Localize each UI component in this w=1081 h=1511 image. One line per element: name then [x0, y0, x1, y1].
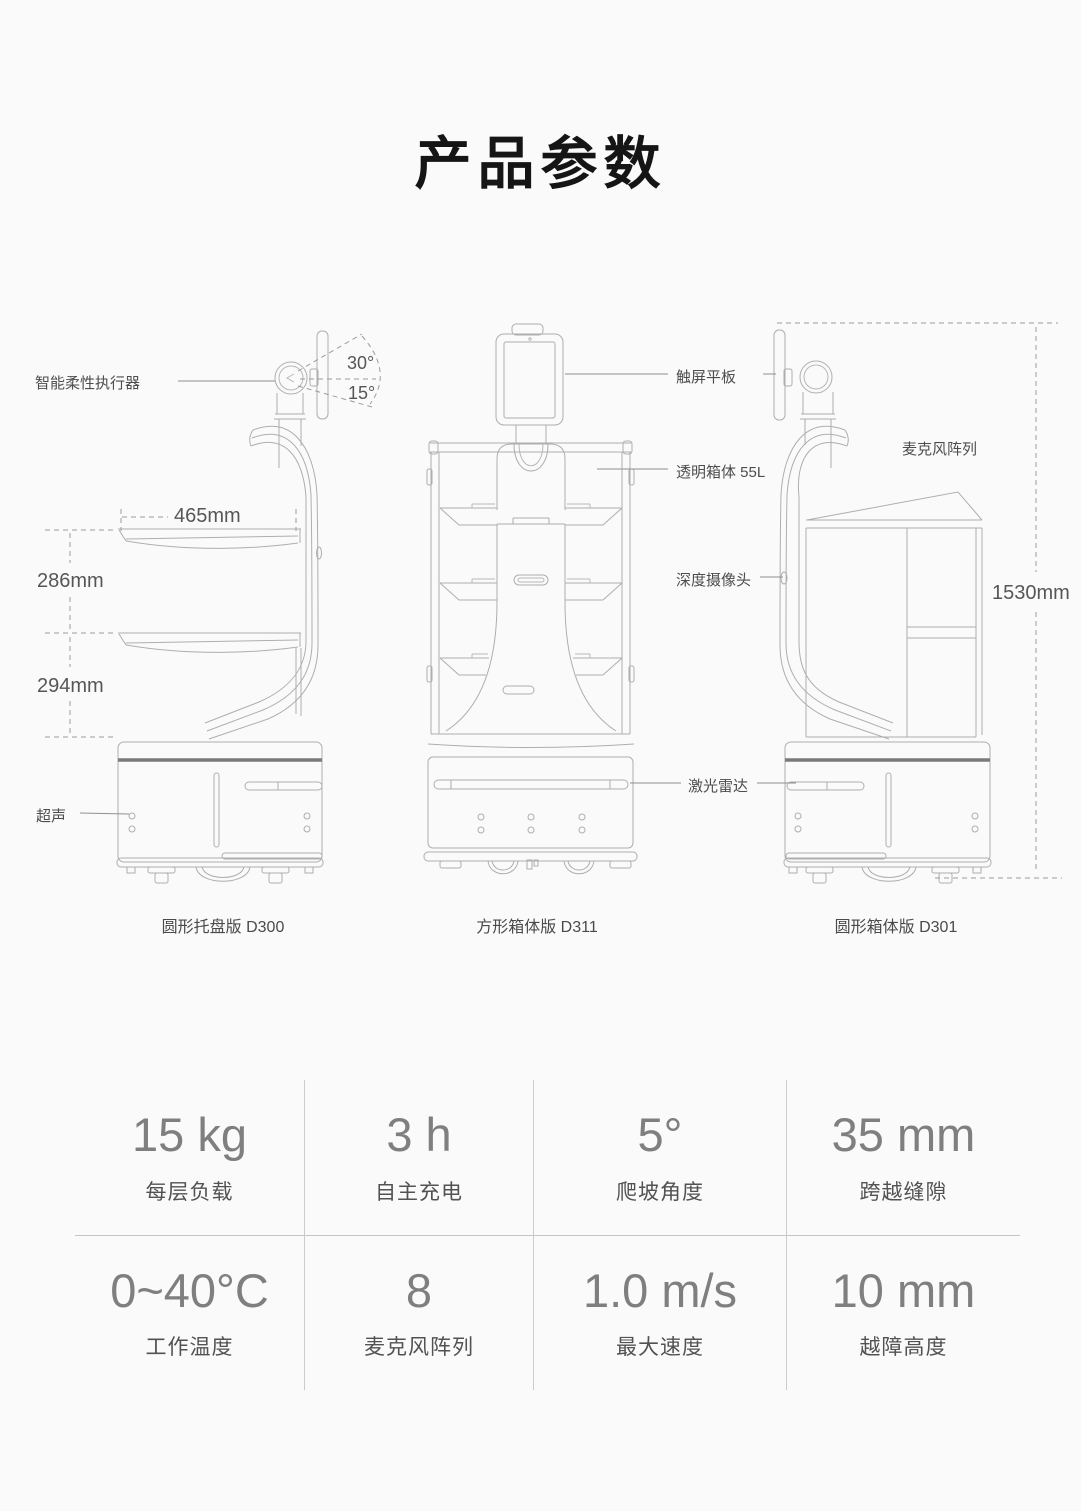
spec-climb-angle: 5° 爬坡角度 [533, 1080, 786, 1235]
spec-climb-angle-label: 爬坡角度 [616, 1176, 704, 1206]
spec-obstacle-height-value: 10 mm [832, 1265, 976, 1317]
robot-d311-drawing [424, 324, 637, 874]
spec-max-speed-value: 1.0 m/s [583, 1265, 737, 1317]
caption-d311: 方形箱体版 D311 [397, 913, 677, 937]
shelf-level-3 [440, 654, 622, 675]
spec-load: 15 kg 每层负载 [75, 1080, 304, 1235]
total-height-dim: 1530mm [992, 582, 1070, 605]
robot-d300-drawing [117, 331, 328, 883]
caption-d300: 圆形托盘版 D300 [83, 913, 363, 937]
spec-mic-array-label: 麦克风阵列 [364, 1331, 474, 1361]
spec-temperature-label: 工作温度 [146, 1331, 234, 1361]
spec-load-value: 15 kg [132, 1109, 247, 1161]
product-spec-page: 产品参数 [0, 0, 1081, 1511]
spec-max-speed: 1.0 m/s 最大速度 [533, 1235, 786, 1390]
spec-obstacle-height: 10 mm 越障高度 [786, 1235, 1020, 1390]
shelf-level-1 [440, 504, 622, 525]
robot-d301-drawing [774, 330, 991, 883]
actuator-label: 智能柔性执行器 [35, 372, 140, 393]
lidar-label: 激光雷达 [688, 775, 748, 796]
spec-temperature-value: 0~40°C [110, 1265, 269, 1317]
tray-gap-upper-dim: 286mm [37, 570, 104, 593]
spec-obstacle-height-label: 越障高度 [860, 1331, 948, 1361]
spec-mic-array: 8 麦克风阵列 [304, 1235, 533, 1390]
caption-d301: 圆形箱体版 D301 [756, 913, 1036, 937]
spec-charging: 3 h 自主充电 [304, 1080, 533, 1235]
spec-grid: 15 kg 每层负载 3 h 自主充电 5° 爬坡角度 35 mm 跨越缝隙 0… [75, 1080, 1020, 1390]
ultrasonic-label: 超声 [36, 805, 66, 826]
depth-camera-label: 深度摄像头 [676, 569, 751, 590]
spec-gap-crossing: 35 mm 跨越缝隙 [786, 1080, 1020, 1235]
spec-load-label: 每层负载 [146, 1176, 234, 1206]
tilt-up-angle: 30° [347, 353, 374, 374]
spec-gap-crossing-value: 35 mm [832, 1109, 976, 1161]
spec-mic-array-value: 8 [406, 1265, 432, 1317]
spec-climb-angle-value: 5° [638, 1109, 683, 1161]
spec-gap-crossing-label: 跨越缝隙 [860, 1176, 948, 1206]
spec-temperature: 0~40°C 工作温度 [75, 1235, 304, 1390]
spec-charging-label: 自主充电 [375, 1176, 463, 1206]
tray-width-dim: 465mm [174, 505, 241, 528]
leader-lines [80, 374, 796, 814]
spec-charging-value: 3 h [386, 1109, 451, 1161]
touchscreen-label: 触屏平板 [676, 366, 736, 387]
dimension-lines [45, 323, 1062, 878]
mic-array-label: 麦克风阵列 [902, 438, 977, 459]
tray-gap-lower-dim: 294mm [37, 675, 104, 698]
tilt-down-angle: 15° [348, 383, 375, 404]
spec-max-speed-label: 最大速度 [616, 1331, 704, 1361]
transparent-box-label: 透明箱体 55L [676, 461, 765, 482]
